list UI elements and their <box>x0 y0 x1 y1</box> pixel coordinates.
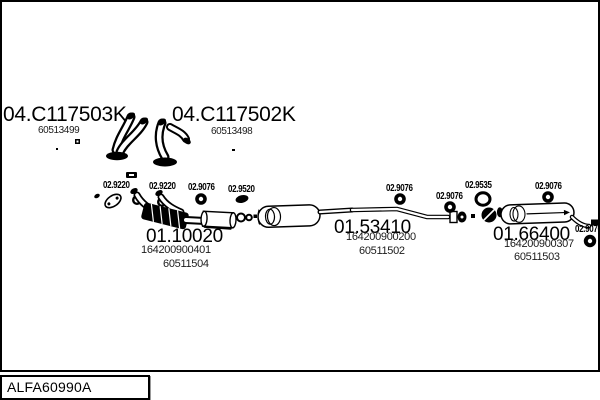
oem-number: 60511502 <box>359 245 405 257</box>
fitting-code-clamp-1[interactable]: 02.9076 <box>188 182 215 193</box>
oem-number: 164200900307 <box>504 238 574 250</box>
oem-number: 164200900401 <box>141 244 211 256</box>
fitting-code-gasket-left-2[interactable]: 02.9220 <box>149 181 176 192</box>
diagram-code-box: ALFA60990A <box>0 375 150 400</box>
fitting-code-clamp-2[interactable]: 02.9076 <box>386 183 413 194</box>
oem-number: 60511504 <box>163 258 209 270</box>
oem-number: 164200900200 <box>346 231 416 243</box>
fitting-code-clamp-4[interactable]: 02.9076 <box>535 181 562 192</box>
part-code-manifold-left[interactable]: 04.C117503K <box>3 103 127 127</box>
diagram-code: ALFA60990A <box>2 377 148 398</box>
oem-number: 60511503 <box>514 251 560 263</box>
fitting-code-clamp-3[interactable]: 02.9076 <box>436 191 463 202</box>
oem-number: 60513498 <box>211 126 252 137</box>
fitting-code-gasket-left-1[interactable]: 02.9220 <box>103 180 130 191</box>
fitting-code-clamp-5[interactable]: 02.9076 <box>575 224 600 235</box>
exhaust-parts-diagram: 04.C117503K 60513499 04.C117502K 6051349… <box>0 0 600 400</box>
diagram-border-frame <box>0 0 600 372</box>
fitting-code-mount[interactable]: 02.9520 <box>228 184 255 195</box>
fitting-code-ring-seal[interactable]: 02.9535 <box>465 180 492 191</box>
part-code-manifold-right[interactable]: 04.C117502K <box>172 103 296 127</box>
oem-number: 60513499 <box>38 125 79 136</box>
